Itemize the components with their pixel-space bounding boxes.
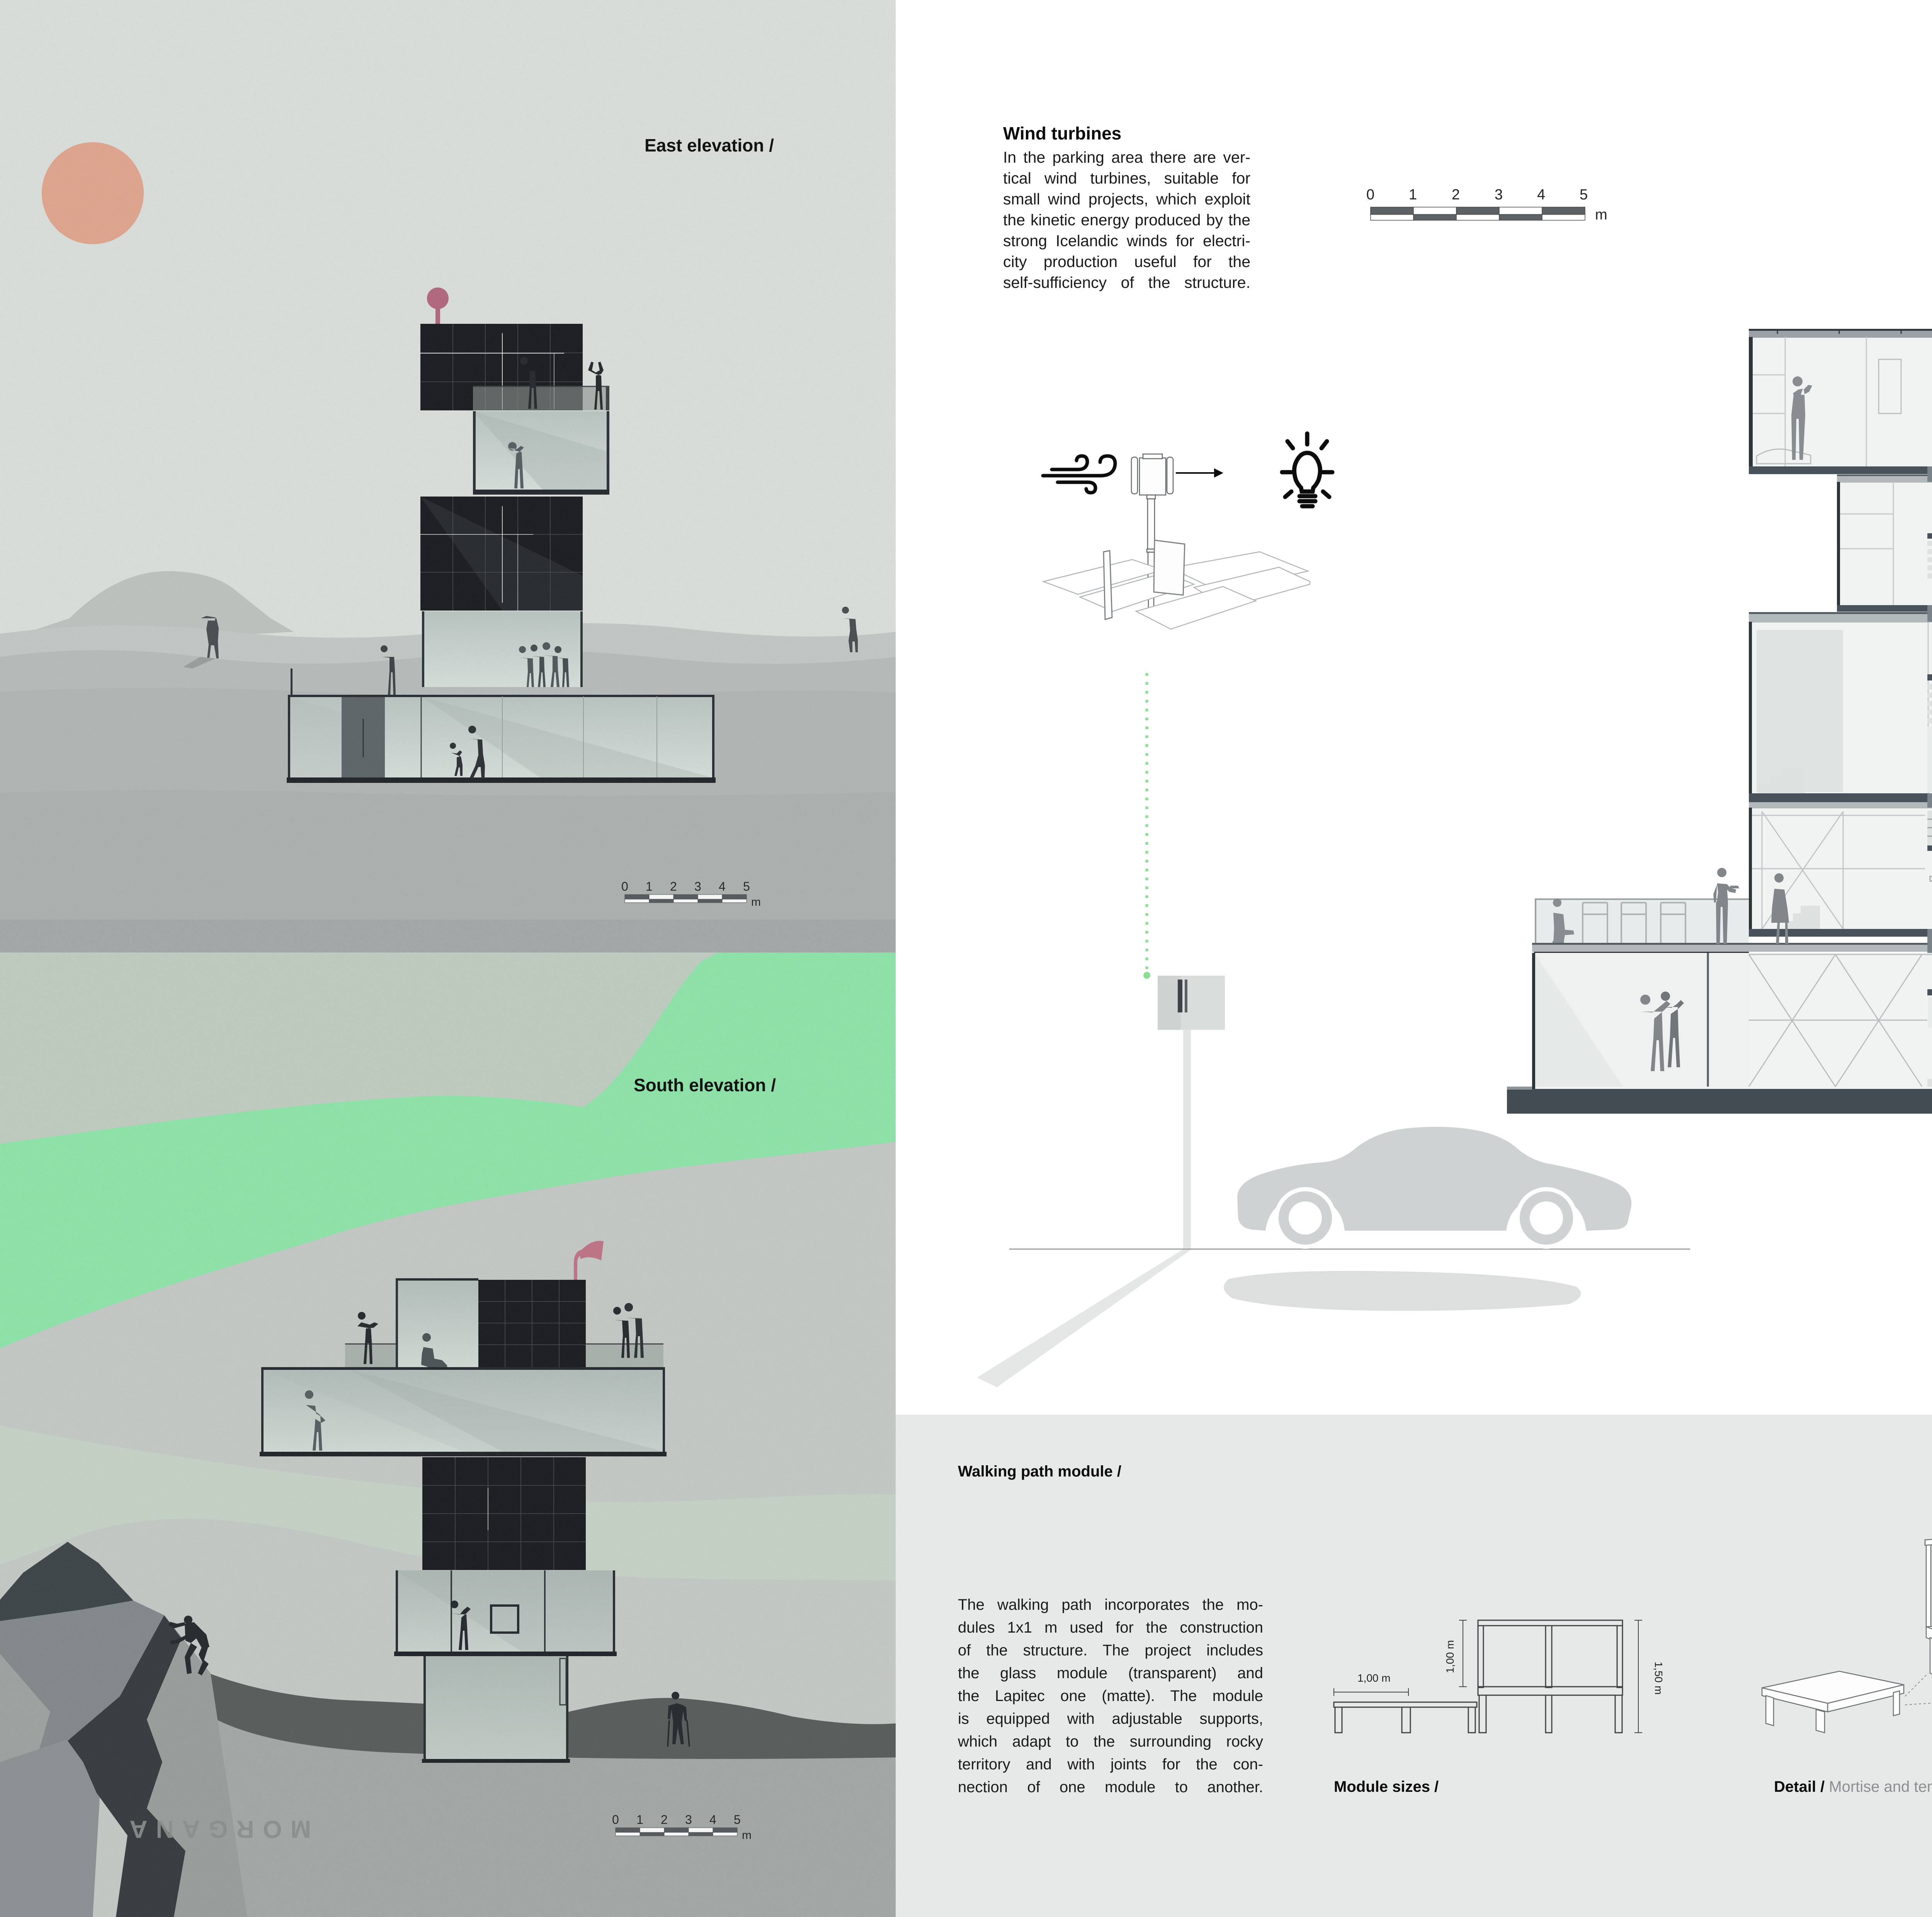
svg-text:1: 1 (1409, 187, 1417, 203)
svg-text:1,50 m: 1,50 m (1653, 1662, 1665, 1695)
svg-text:m: m (1595, 207, 1607, 223)
svg-text:2: 2 (1452, 187, 1460, 203)
svg-text:3: 3 (1495, 187, 1503, 203)
svg-text:4: 4 (1537, 187, 1545, 203)
svg-text:1,00 m: 1,00 m (1444, 1640, 1456, 1673)
svg-text:0: 0 (1366, 187, 1374, 203)
svg-text:5: 5 (1580, 187, 1588, 203)
svg-text:1,00 m: 1,00 m (1357, 1672, 1391, 1684)
